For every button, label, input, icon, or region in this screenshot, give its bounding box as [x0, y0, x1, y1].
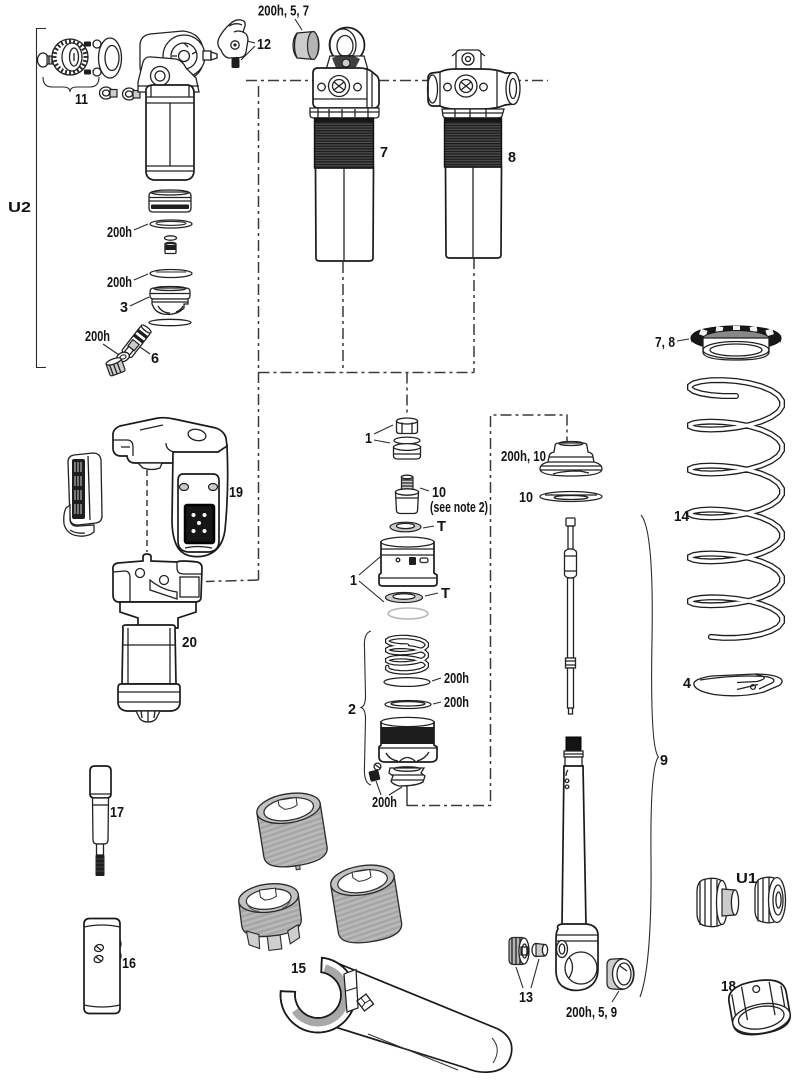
svg-text:200h, 10: 200h, 10 — [501, 449, 546, 465]
svg-text:200h: 200h — [372, 795, 397, 811]
svg-text:(see note 2): (see note 2) — [430, 500, 488, 516]
svg-text:3: 3 — [120, 300, 128, 316]
svg-text:200h: 200h — [85, 329, 110, 345]
svg-text:10: 10 — [519, 490, 533, 506]
svg-text:U1: U1 — [736, 871, 757, 887]
svg-text:7: 7 — [380, 145, 388, 161]
svg-text:200h, 5, 7: 200h, 5, 7 — [258, 4, 309, 20]
svg-text:200h: 200h — [444, 671, 469, 687]
svg-text:200h: 200h — [107, 275, 132, 291]
svg-text:1: 1 — [365, 431, 372, 447]
svg-text:200h: 200h — [107, 225, 132, 241]
svg-text:14: 14 — [674, 509, 689, 525]
svg-text:8: 8 — [508, 150, 516, 166]
svg-text:16: 16 — [122, 956, 136, 972]
svg-text:200h: 200h — [444, 695, 469, 711]
svg-text:20: 20 — [182, 635, 197, 651]
svg-text:7, 8: 7, 8 — [655, 335, 675, 351]
svg-text:9: 9 — [660, 753, 668, 769]
svg-text:4: 4 — [683, 676, 691, 692]
svg-text:13: 13 — [519, 990, 533, 1006]
svg-text:U2: U2 — [8, 200, 31, 216]
svg-text:11: 11 — [75, 92, 88, 108]
svg-text:10: 10 — [432, 485, 446, 501]
svg-text:T: T — [441, 586, 450, 602]
svg-text:19: 19 — [229, 485, 243, 501]
svg-text:1: 1 — [350, 573, 357, 589]
svg-text:17: 17 — [110, 805, 124, 821]
svg-text:2: 2 — [348, 702, 356, 718]
svg-text:T: T — [437, 519, 446, 535]
svg-text:12: 12 — [257, 37, 271, 53]
svg-text:6: 6 — [151, 351, 159, 367]
svg-text:15: 15 — [291, 961, 306, 977]
svg-text:200h, 5, 9: 200h, 5, 9 — [566, 1005, 617, 1021]
